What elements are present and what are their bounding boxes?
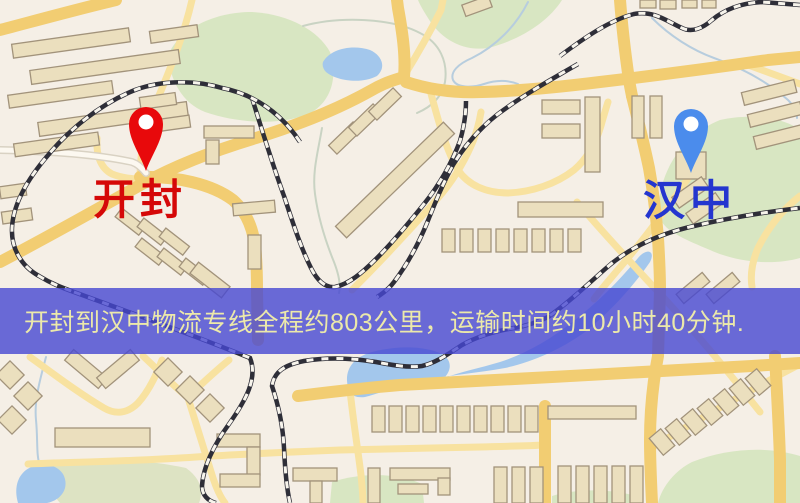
map-canvas (0, 0, 800, 503)
destination-pin[interactable] (673, 108, 709, 174)
route-info-text: 开封到汉中物流专线全程约803公里，运输时间约10小时40分钟. (24, 303, 744, 339)
origin-pin[interactable] (128, 106, 164, 172)
map-pin-icon (129, 107, 163, 171)
route-map-view: 开封到汉中物流专线全程约803公里，运输时间约10小时40分钟. 开封 汉中 (0, 0, 800, 503)
route-info-banner: 开封到汉中物流专线全程约803公里，运输时间约10小时40分钟. (0, 288, 800, 354)
map-pin-icon (674, 109, 708, 173)
origin-label: 开封 (70, 179, 210, 221)
destination-label: 汉中 (620, 180, 760, 222)
